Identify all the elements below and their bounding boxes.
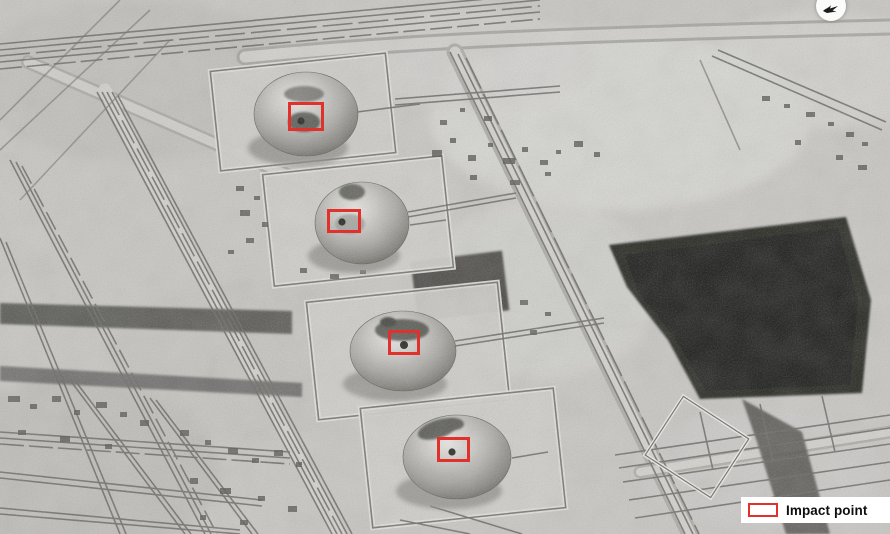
impact-point-swatch xyxy=(748,503,778,517)
annotated-satellite-image: Impact point xyxy=(0,0,890,534)
film-grain-overlay xyxy=(0,0,890,534)
legend: Impact point xyxy=(741,497,890,523)
satellite-photo-scene xyxy=(0,0,890,534)
legend-label: Impact point xyxy=(786,503,867,518)
